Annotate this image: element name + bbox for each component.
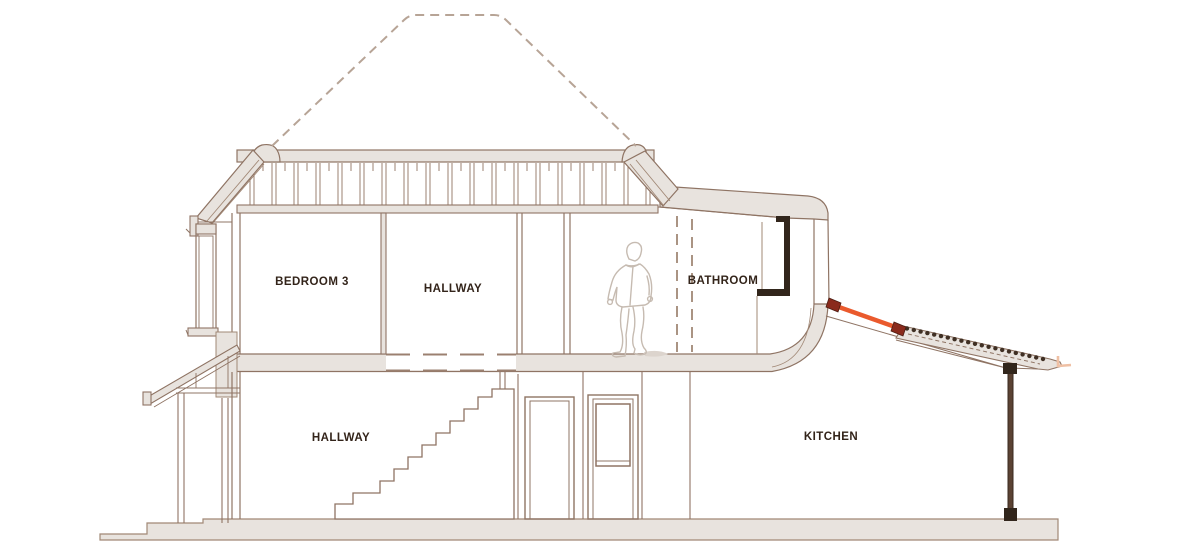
section-drawing: BEDROOM 3 HALLWAY BATHROOM HALLWAY KITCH… bbox=[0, 0, 1200, 560]
door-2 bbox=[588, 395, 638, 519]
room-label-bathroom: BATHROOM bbox=[688, 275, 758, 287]
curved-wall-edges bbox=[814, 219, 829, 304]
room-label-kitchen: KITCHEN bbox=[804, 431, 858, 443]
strut-fitting-right bbox=[891, 322, 906, 336]
section-drawing-canvas bbox=[0, 0, 1200, 560]
ground-slab bbox=[100, 519, 1058, 540]
bathroom-inner-wall-lines bbox=[757, 222, 762, 354]
orange-strut bbox=[836, 306, 901, 329]
left-window bbox=[186, 224, 218, 336]
room-label-hallway-lower: HALLWAY bbox=[312, 432, 370, 444]
sloped-glazed-roof bbox=[826, 316, 1071, 370]
upper-ceiling-band bbox=[237, 205, 658, 213]
attic-top-band bbox=[237, 150, 654, 162]
dashed-roof-outline bbox=[272, 15, 636, 146]
room-label-bedroom3: BEDROOM 3 bbox=[275, 276, 349, 288]
bedroom-hallway-wall bbox=[381, 213, 386, 354]
room-label-hallway-upper: HALLWAY bbox=[424, 283, 482, 295]
door-1 bbox=[525, 397, 574, 519]
support-post bbox=[1003, 363, 1017, 521]
attic-studs bbox=[250, 163, 650, 205]
first-floor-band bbox=[232, 304, 828, 372]
door-wall-lines bbox=[500, 372, 690, 519]
hallway-closet-walls bbox=[517, 213, 570, 354]
person-figure bbox=[608, 242, 668, 357]
staircase bbox=[335, 389, 514, 519]
